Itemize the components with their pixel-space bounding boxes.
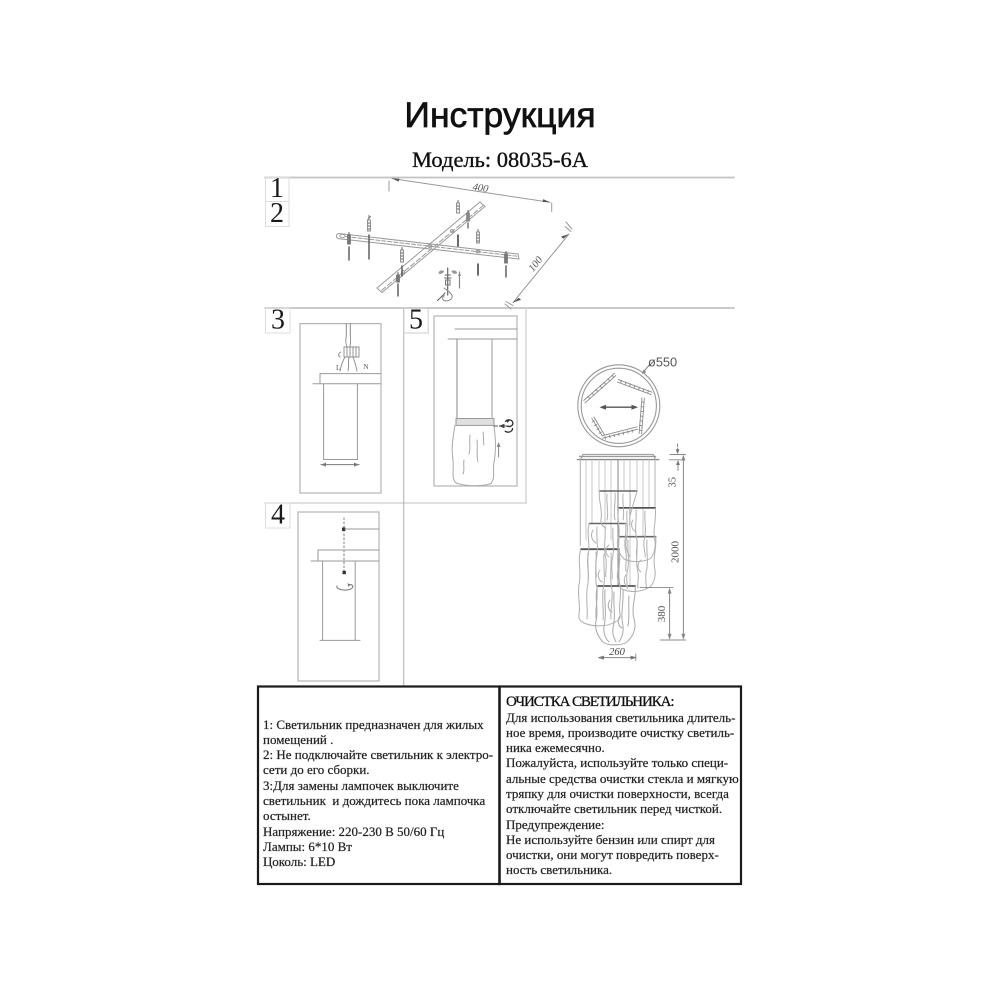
svg-text:ø550: ø550 xyxy=(648,355,677,370)
svg-text:N: N xyxy=(364,363,369,371)
svg-text:35: 35 xyxy=(668,477,679,488)
svg-text:400: 400 xyxy=(472,182,490,195)
svg-text:L: L xyxy=(336,364,340,372)
svg-text:2: 2 xyxy=(270,198,284,229)
svg-text:100: 100 xyxy=(527,254,546,274)
svg-text:3: 3 xyxy=(271,305,285,336)
svg-text:260: 260 xyxy=(609,647,626,658)
svg-text:4: 4 xyxy=(271,500,285,531)
svg-text:5: 5 xyxy=(409,305,423,336)
svg-text:2000: 2000 xyxy=(670,541,682,564)
svg-text:380: 380 xyxy=(656,605,668,622)
